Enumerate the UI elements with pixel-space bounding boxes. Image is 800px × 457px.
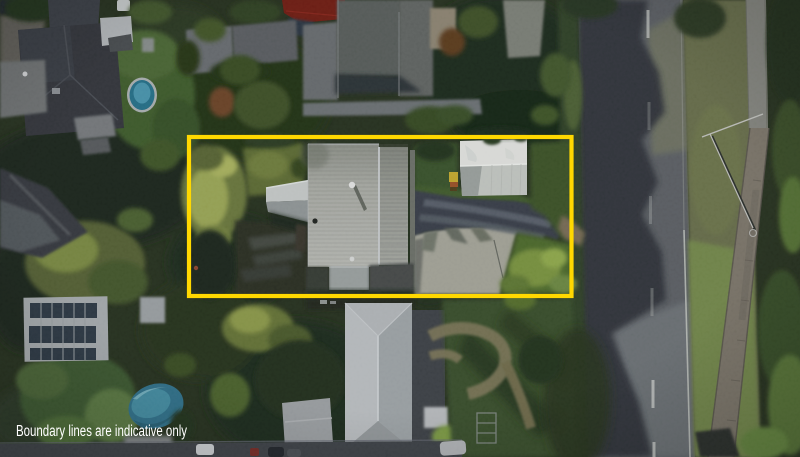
svg-text:Boundary lines are indicative: Boundary lines are indicative only: [16, 423, 187, 440]
